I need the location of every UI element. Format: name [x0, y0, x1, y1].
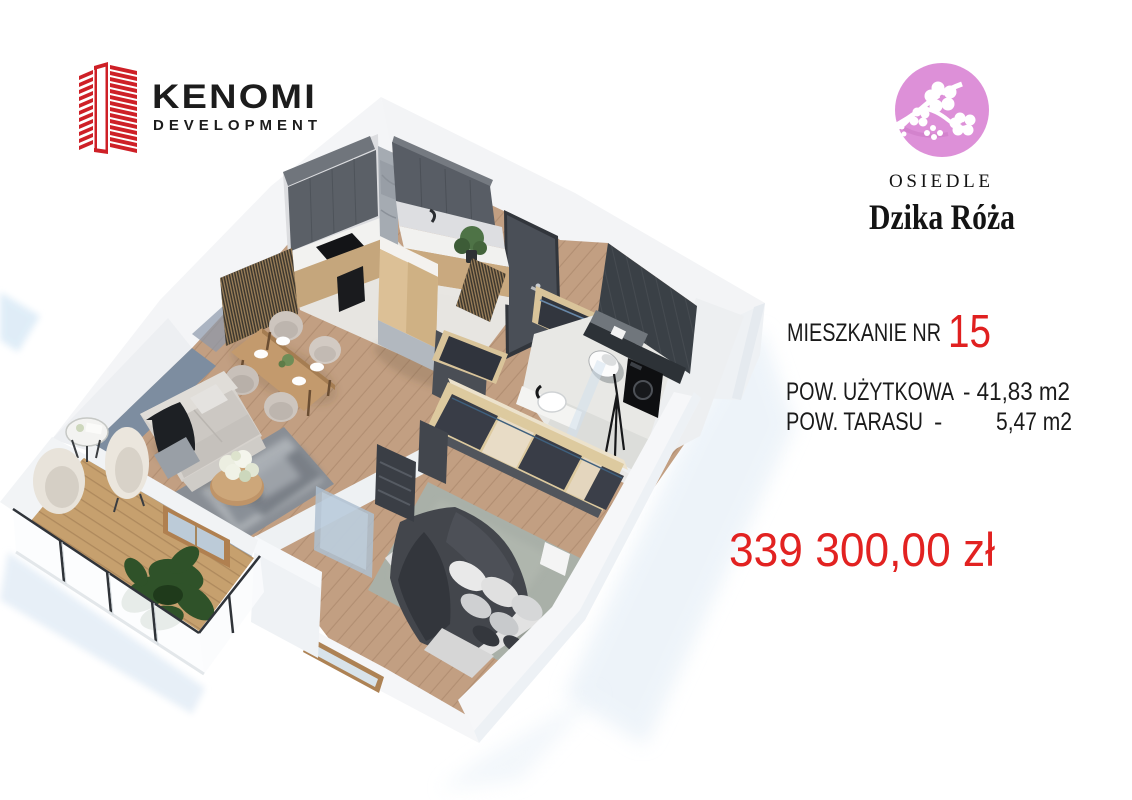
svg-text:DEVELOPMENT: DEVELOPMENT [153, 117, 321, 134]
svg-text:-: - [934, 408, 942, 436]
svg-text:POW. UŻYTKOWA: POW. UŻYTKOWA [786, 377, 954, 406]
svg-text:339 300,00 zł: 339 300,00 zł [729, 523, 996, 576]
svg-text:- 41,83 m2: - 41,83 m2 [963, 378, 1070, 406]
svg-text:Dzika Róża: Dzika Róża [869, 197, 1015, 237]
svg-text:OSIEDLE: OSIEDLE [889, 171, 996, 192]
svg-text:KENOMI: KENOMI [152, 78, 317, 116]
svg-text:5,47 m2: 5,47 m2 [996, 408, 1072, 436]
svg-text:15: 15 [948, 305, 991, 357]
svg-text:POW. TARASU: POW. TARASU [786, 408, 923, 436]
svg-text:MIESZKANIE NR: MIESZKANIE NR [787, 319, 941, 347]
